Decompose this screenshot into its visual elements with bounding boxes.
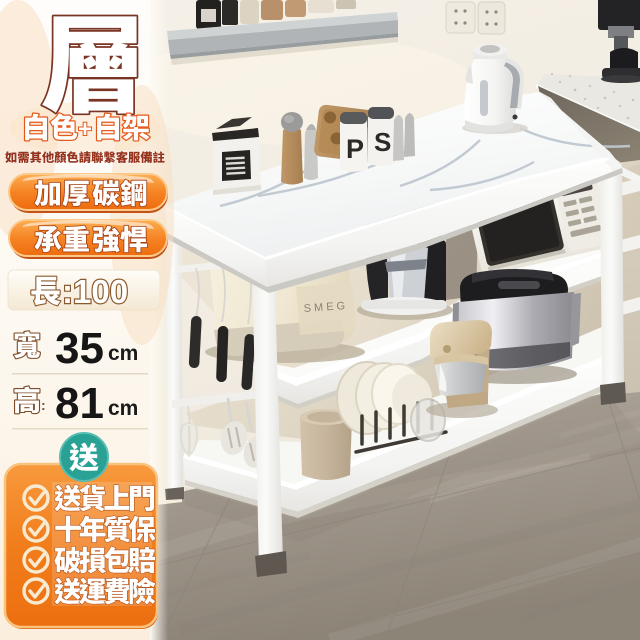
svg-text:81: 81: [55, 379, 104, 428]
svg-text:35: 35: [55, 324, 104, 373]
svg-text:cm: cm: [108, 397, 138, 420]
svg-text::: :: [41, 397, 46, 413]
svg-text:P: P: [346, 134, 364, 164]
svg-text:+: +: [78, 116, 92, 143]
svg-text::100: :100: [62, 273, 128, 310]
svg-text:S: S: [374, 127, 391, 157]
svg-text:cm: cm: [108, 342, 138, 365]
